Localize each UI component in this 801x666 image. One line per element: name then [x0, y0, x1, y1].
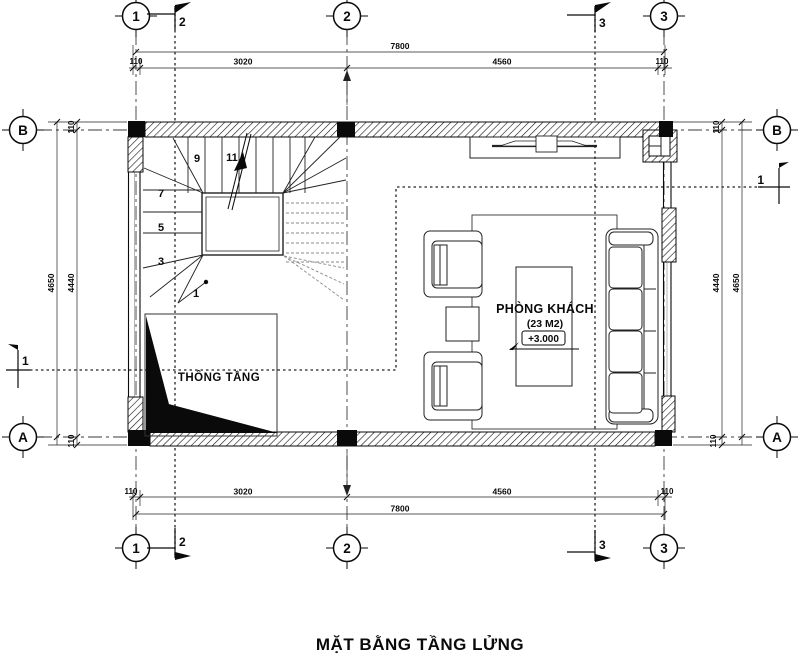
- section-label: 1: [22, 354, 29, 368]
- grid-bubble-right-B: B: [756, 109, 798, 151]
- side-table: [446, 307, 479, 341]
- stair-number-7: 7: [158, 188, 164, 200]
- dim-top-3020: 3020: [234, 57, 253, 67]
- section-marker-3-top: 3: [567, 2, 611, 32]
- dim-right-110-top: 110: [712, 120, 721, 133]
- stair-step-numbers: 1 3 5 7 9 11: [158, 152, 238, 300]
- grid-bubble-top-3: 3: [643, 0, 685, 37]
- grid-label: A: [18, 430, 28, 445]
- overhead-treads: [284, 203, 344, 300]
- grid-bubble-top-2: 2: [326, 0, 368, 37]
- dim-left-4650: 4650: [46, 273, 56, 292]
- grid-label: 2: [343, 9, 351, 24]
- stair-direction-arrow: [228, 133, 251, 210]
- section-marker-2-bottom: 2: [147, 528, 191, 560]
- dim-right-110-bot: 110: [709, 434, 718, 447]
- dim-left-110-bot: 110: [67, 434, 76, 447]
- dim-top-110-right: 110: [656, 57, 669, 66]
- staircase: [143, 133, 346, 303]
- void-wedge-vertical: [146, 316, 170, 408]
- dim-bot-110-left: 110: [125, 487, 138, 496]
- grid-bubble-top-1: 1: [115, 0, 157, 37]
- dim-top-4560: 4560: [493, 57, 512, 67]
- dim-bot-3020: 3020: [234, 487, 253, 497]
- dim-bot-110-right: 110: [661, 487, 674, 496]
- tv-console: [470, 136, 620, 158]
- stair-number-5: 5: [158, 222, 164, 234]
- section-label: 2: [179, 15, 186, 29]
- stair-number-9: 9: [194, 153, 200, 165]
- grid-bubble-right-A: A: [756, 416, 798, 458]
- section-label: 3: [599, 16, 606, 30]
- grid-label: B: [18, 123, 28, 138]
- grid-label: 1: [132, 541, 140, 556]
- section-label: 1: [757, 173, 764, 187]
- grid-label: A: [772, 430, 782, 445]
- living-room-area: (23 M2): [527, 318, 563, 330]
- dim-left-4440: 4440: [66, 273, 76, 292]
- grid-label: 1: [132, 9, 140, 24]
- level-value: +3.000: [528, 334, 559, 345]
- armchair-2: [424, 352, 482, 420]
- section-markers: 2 3 1 1 2 3: [6, 2, 790, 562]
- columns: [128, 121, 673, 446]
- section-marker-1-left: 1: [6, 344, 30, 388]
- armchair-1: [424, 231, 482, 297]
- dim-right-4650: 4650: [731, 273, 741, 292]
- grid-label: 3: [660, 541, 668, 556]
- grid-bubble-left-B: B: [2, 109, 44, 151]
- section-label: 2: [179, 535, 186, 549]
- living-room-label: PHÒNG KHÁCH: [496, 301, 594, 316]
- floor-plan-drawing: 7800 110 3020 4560 110 110 3020 4560 110…: [0, 0, 801, 666]
- grid-bubbles: 1 2 3 1 2 3 B A: [2, 0, 798, 569]
- section-marker-1-right: 1: [757, 162, 790, 204]
- void-room-label: THÔNG TẦNG: [178, 371, 260, 384]
- grid-bubble-bottom-2: 2: [326, 527, 368, 569]
- section-label: 3: [599, 538, 606, 552]
- floor-plan-sheet: 7800 110 3020 4560 110 110 3020 4560 110…: [0, 0, 801, 666]
- section-marker-3-bottom: 3: [567, 530, 611, 562]
- sofa: [606, 229, 658, 424]
- dim-bot-total: 7800: [391, 504, 410, 514]
- grid-label: 2: [343, 541, 351, 556]
- furniture: [424, 136, 658, 424]
- dim-bot-4560: 4560: [493, 487, 512, 497]
- stair-number-3: 3: [158, 256, 164, 268]
- stair-number-11: 11: [226, 152, 238, 164]
- stair-number-1: 1: [193, 288, 199, 300]
- drawing-title: MẶT BẰNG TẦNG LỬNG: [316, 635, 524, 654]
- grid-label: 3: [660, 9, 668, 24]
- dim-top-total: 7800: [391, 41, 410, 51]
- grid-bubble-left-A: A: [2, 416, 44, 458]
- dim-left-110-top: 110: [67, 120, 76, 133]
- dim-top-110-left: 110: [130, 57, 143, 66]
- grid-bubble-bottom-3: 3: [643, 527, 685, 569]
- dim-right-4440: 4440: [711, 273, 721, 292]
- grid-label: B: [772, 123, 782, 138]
